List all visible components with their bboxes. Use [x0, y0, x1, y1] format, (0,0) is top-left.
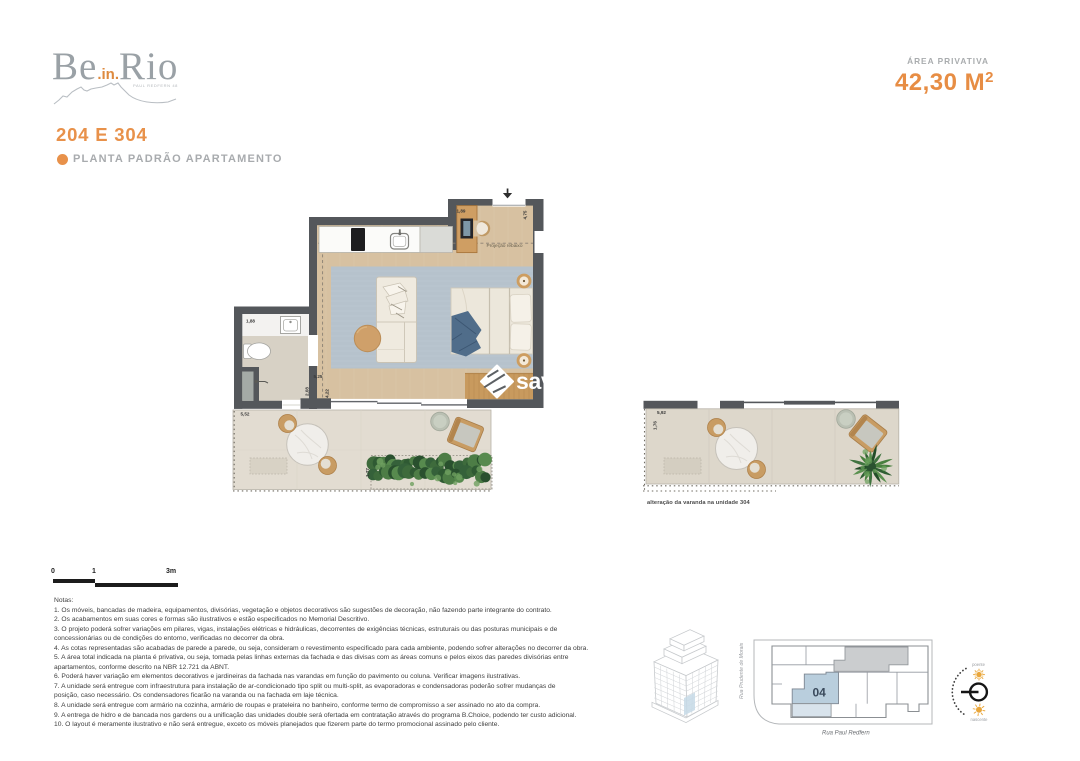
svg-text:Rua Prudente de Morais: Rua Prudente de Morais — [739, 642, 745, 699]
svg-text:Rua Paul Redfern: Rua Paul Redfern — [822, 731, 870, 737]
svg-text:nascente: nascente — [971, 717, 989, 722]
svg-text:poente: poente — [972, 662, 985, 667]
svg-text:04: 04 — [813, 686, 827, 700]
